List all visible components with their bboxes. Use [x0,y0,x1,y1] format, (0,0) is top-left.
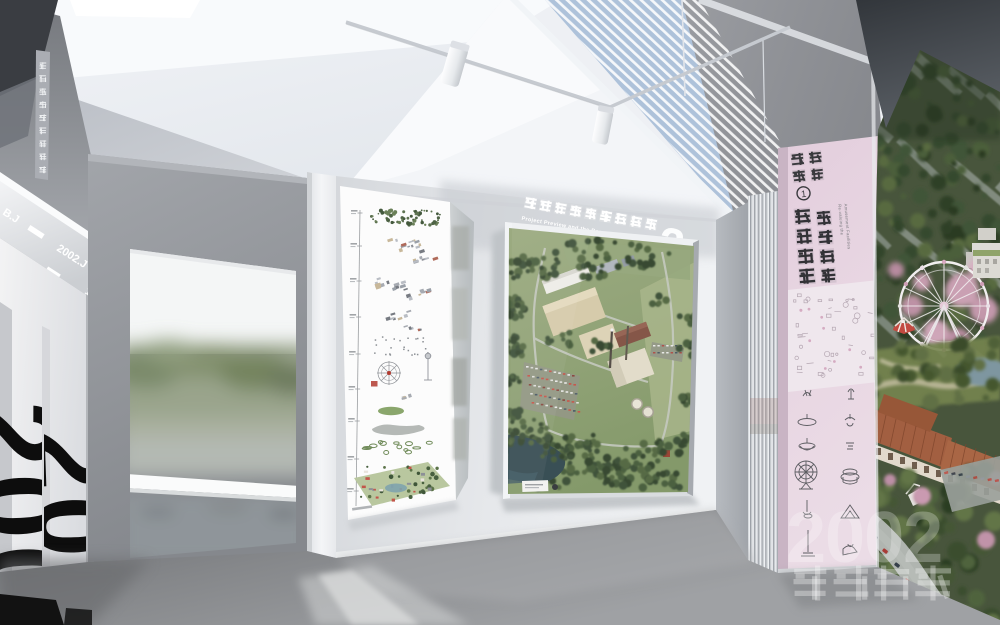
svg-text:1: 1 [801,189,807,200]
svg-text:2002: 2002 [786,498,942,578]
